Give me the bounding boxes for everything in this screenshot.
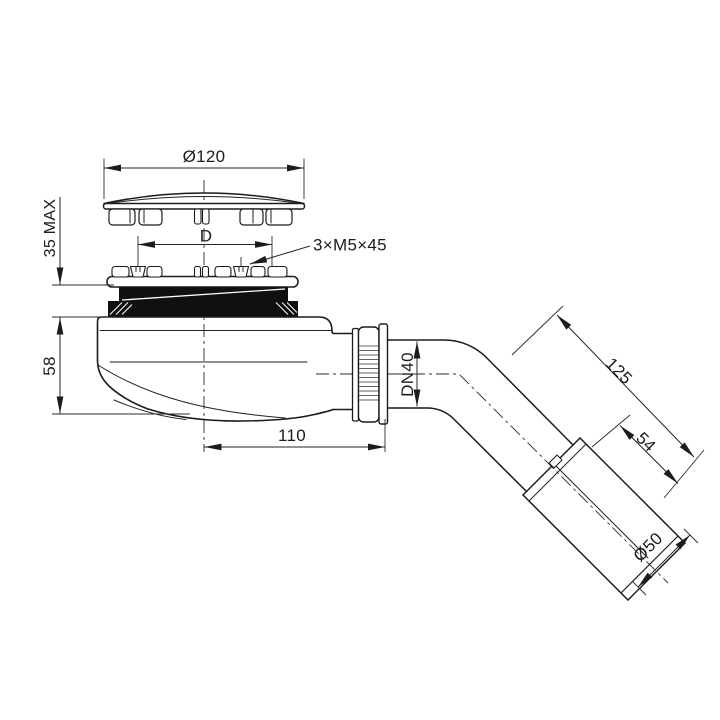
dim-label-screw-circle: D [200,227,213,246]
label-screw-spec: 3×M5×45 [250,236,387,265]
flange-plate [107,277,298,288]
cover-foot [139,209,162,225]
body-sweep-line [98,365,285,418]
dim-label-center-to-outlet: 110 [278,426,306,445]
screw-left [131,267,146,278]
trap-body [98,317,353,421]
flange-tab [112,267,129,278]
dim-label-outlet-nominal: DN40 [398,352,417,397]
dim-outlet-length: 125 [512,306,704,498]
extension-line [512,306,563,355]
dim-trap-height: 58 [40,317,190,414]
dim-outlet-nominal: DN40 [398,342,417,407]
cover-foot [240,209,263,225]
socket-bore-line [554,464,648,558]
dim-label-socket-diameter: Ø50 [630,529,667,566]
socket-bottom-edge [523,495,628,600]
flange-tab [203,267,209,278]
flange-tab [195,267,201,278]
dim-installed-height: 35 MAX [42,197,114,285]
extension-line [592,415,630,447]
dim-center-to-outlet: 110 [205,419,386,452]
nut-washer-flange [379,324,388,424]
socket-entry-chamfer [529,444,586,501]
nut-left-rim [353,329,359,422]
extension-line [684,529,698,543]
extension-line [664,450,704,498]
compression-nut [353,324,388,424]
cover-foot [109,209,135,225]
dim-label-trap-height: 58 [40,356,59,376]
cover-center-tab [203,209,210,224]
body-outline [98,317,353,421]
dim-label-outlet-length: 125 [602,354,636,388]
gasket [108,287,298,317]
flange-tab [268,267,287,278]
dim-label-socket-length: 54 [632,428,659,455]
screw-head [234,267,249,278]
leader-line [250,246,310,264]
cover-plate [104,204,305,210]
cover-feet [109,209,292,225]
flange-tab [147,267,162,278]
flange-tab [251,267,265,278]
nut-knurled-body [359,327,380,422]
dimension-line [557,315,694,457]
dim-label-installed-height: 35 MAX [42,199,59,258]
screw-right [234,267,249,278]
pipe-bottom-wall [388,408,527,492]
cover-foot [266,209,292,225]
technical-drawing-canvas: Ø120 D 3×M5×45 [0,0,720,720]
dim-socket-length: 54 [592,415,678,484]
gasket-lower [108,301,298,317]
flange-tab [215,267,231,278]
dim-socket-diameter: Ø50 [630,529,698,595]
dim-label-cover-diameter: Ø120 [183,147,226,166]
socket-top-edge [580,438,685,543]
cover-center-tab [195,209,202,224]
screw-head [131,267,146,278]
dim-label-screw-spec: 3×M5×45 [313,236,387,255]
